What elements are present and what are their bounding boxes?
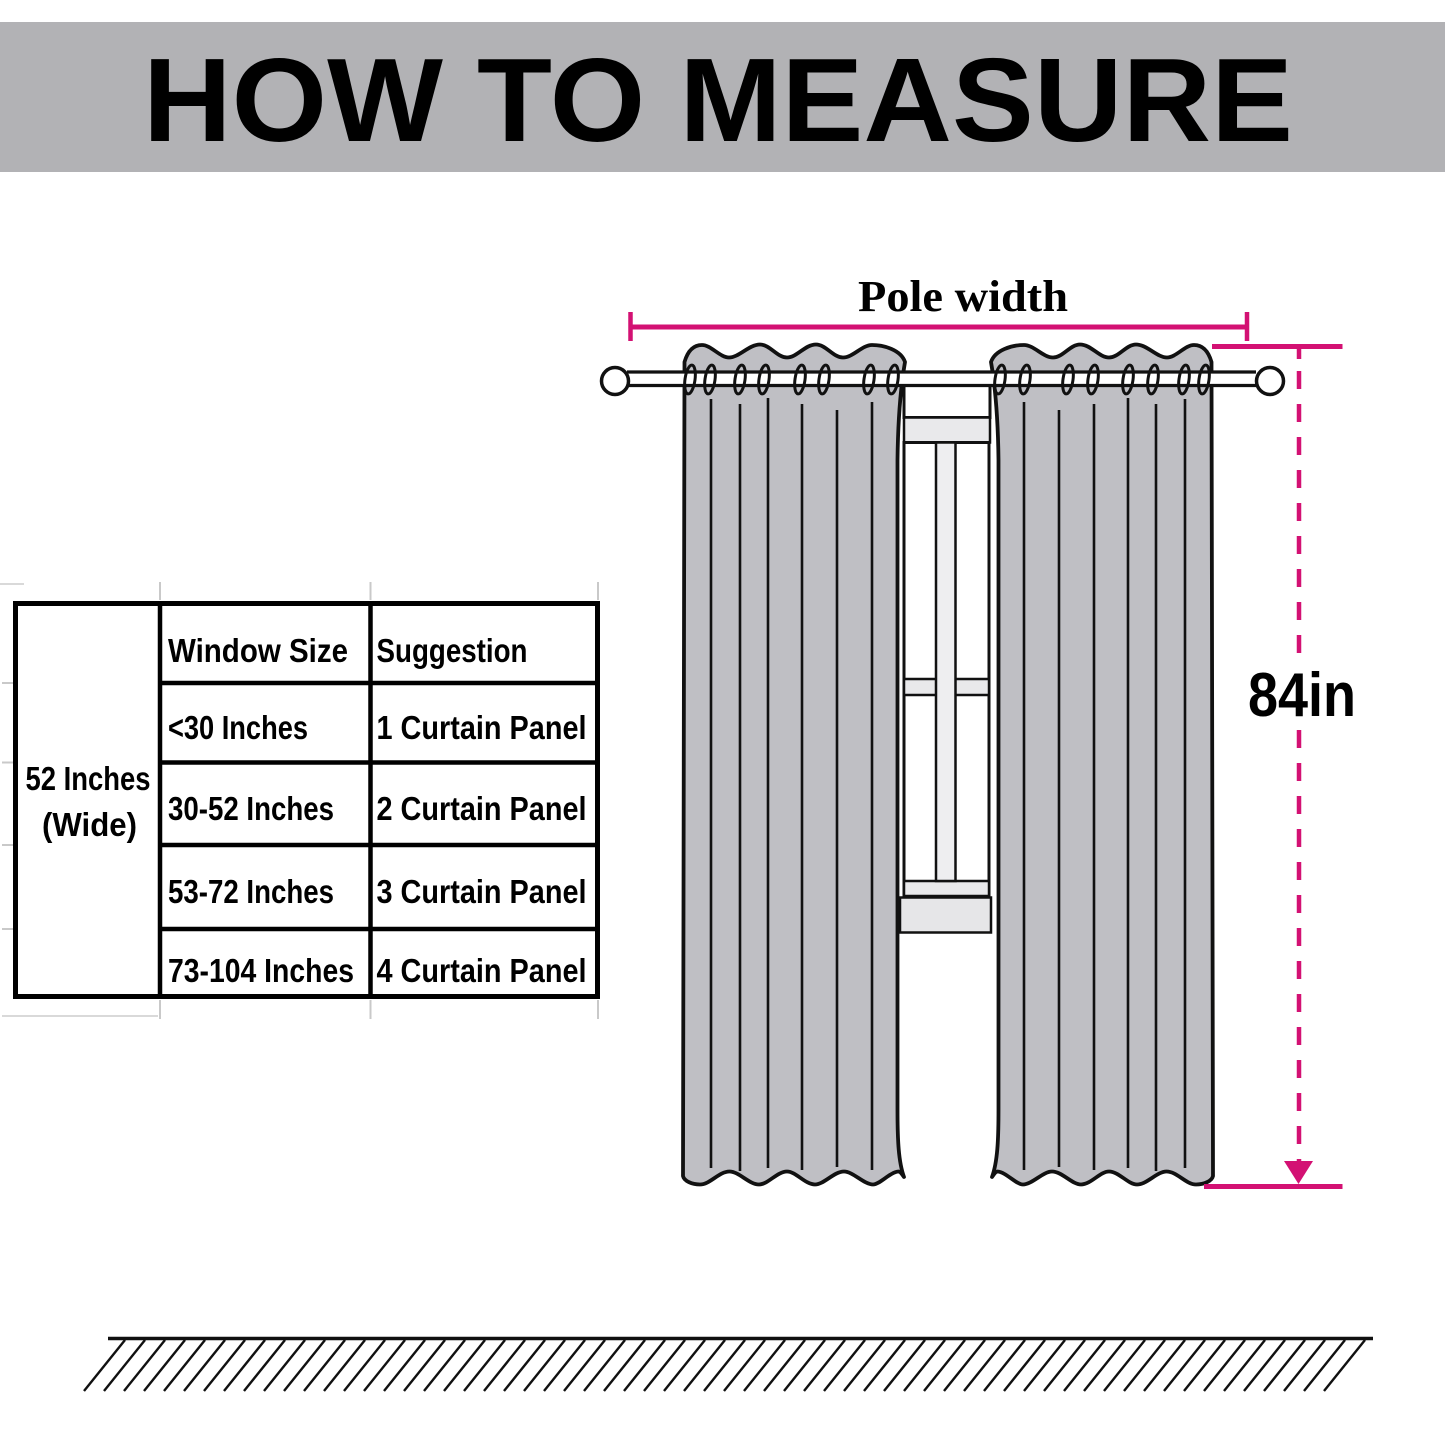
svg-text:<30 Inches: <30 Inches [168,709,308,746]
svg-text:30-52 Inches: 30-52 Inches [168,790,334,827]
svg-text:52 Inches: 52 Inches [26,760,151,797]
svg-text:84in: 84in [1248,661,1356,730]
svg-text:2 Curtain Panel: 2 Curtain Panel [377,790,587,827]
svg-text:Pole width: Pole width [858,272,1068,321]
svg-text:Suggestion: Suggestion [377,632,528,669]
svg-text:4 Curtain Panel: 4 Curtain Panel [377,952,587,989]
svg-text:Window Size: Window Size [168,632,348,669]
svg-text:(Wide): (Wide) [42,806,137,843]
svg-text:1 Curtain Panel: 1 Curtain Panel [377,709,587,746]
svg-text:73-104 Inches: 73-104 Inches [168,952,354,989]
svg-text:53-72 Inches: 53-72 Inches [168,873,334,910]
svg-text:HOW TO MEASURE: HOW TO MEASURE [143,34,1293,167]
svg-text:3 Curtain Panel: 3 Curtain Panel [377,873,587,910]
